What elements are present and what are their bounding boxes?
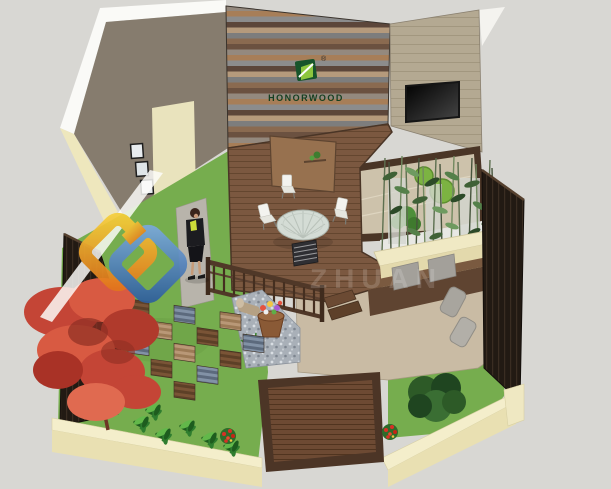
privacy-screen — [270, 136, 336, 192]
wooden-platform — [258, 372, 384, 472]
red-flower-bush — [382, 424, 398, 440]
red-flower-bush — [220, 428, 236, 444]
wall-mounted-tv — [406, 82, 459, 122]
registered-mark: ® — [321, 55, 327, 63]
curb-end-post — [504, 384, 524, 426]
logo-text: HONORWOOD — [268, 93, 344, 103]
garden-render: ® HONORWOOD — [0, 0, 611, 489]
shelf-plant — [314, 152, 321, 159]
render-canvas: ® HONORWOOD — [0, 0, 611, 489]
watermark-text: ZHUAN — [310, 263, 443, 294]
figure-skirt — [188, 245, 204, 262]
round-glass-table — [277, 210, 329, 240]
dark-wood-fence-right — [482, 170, 524, 402]
